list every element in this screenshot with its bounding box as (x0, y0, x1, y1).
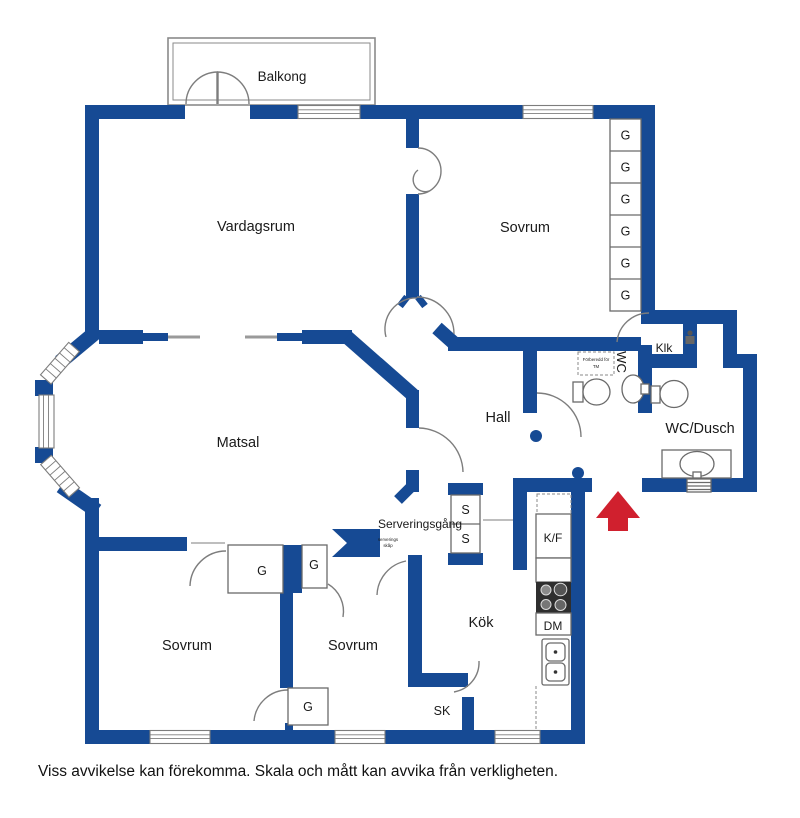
floor-plan: G G G G G G S S G G G serverings skåp (0, 0, 800, 818)
closet-label-s1: S (461, 503, 469, 517)
entrance-arrow-icon (596, 491, 640, 531)
room-label-wc-dusch: WC/Dusch (665, 421, 734, 437)
walls (35, 105, 757, 744)
closet-label-g3: G (621, 193, 631, 207)
disclaimer-text: Viss avvikelse kan förekomma. Skala och … (38, 763, 558, 780)
closet-label-s2: S (461, 532, 469, 546)
stove-icon (536, 582, 571, 613)
door-closet-right-icon (328, 584, 343, 617)
room-label-kok: Kök (469, 615, 495, 631)
washing-machine-provision: Förberedd för TM (578, 352, 614, 375)
door-sovrum-left-icon (190, 543, 226, 586)
bay-window-middle-icon (39, 395, 54, 448)
note-cabinet-line2: skåp (383, 543, 393, 548)
room-label-sovrum-top: Sovrum (500, 220, 550, 236)
floor-plan-page: G G G G G G S S G G G serverings skåp (0, 0, 800, 818)
room-label-sk: SK (434, 704, 451, 718)
serving-cabinet-note: serverings skåp (378, 537, 399, 548)
window-top-right-icon (523, 106, 593, 119)
note-cabinet-line1: serverings (378, 537, 399, 542)
closet-label-g2: G (621, 161, 631, 175)
window-top-left-icon (298, 106, 360, 119)
closet-label-g8: G (309, 558, 319, 572)
closet-label-kf: K/F (544, 531, 563, 545)
closet-label-g7: G (257, 564, 267, 578)
closet-label-g9: G (303, 700, 313, 714)
room-label-sovrum-mid: Sovrum (328, 638, 378, 654)
counter-icon (536, 558, 571, 582)
door-hall-matsal-icon (419, 428, 463, 472)
note-tm-line2: TM (593, 364, 600, 369)
window-bottom-kitchen-icon (495, 731, 540, 744)
room-label-sovrum-left: Sovrum (162, 638, 212, 654)
room-label-hall: Hall (486, 410, 511, 426)
window-bottom-mid-icon (335, 731, 385, 744)
room-label-wc: WC (614, 351, 629, 373)
closet-label-g6: G (621, 289, 631, 303)
closet-label-g1: G (621, 129, 631, 143)
room-label-klk: Klk (656, 341, 674, 355)
closet-label-dm: DM (544, 619, 563, 633)
kitchen-fixtures (536, 494, 571, 729)
g-closet-bottom: G (288, 688, 328, 725)
door-closet-bottom-icon (254, 690, 288, 721)
toilet-wc-icon (573, 379, 610, 405)
room-label-matsal: Matsal (217, 435, 260, 451)
door-vardagsrum-sovrum-icon (413, 148, 441, 194)
window-bottom-left-icon (150, 731, 210, 744)
kitchen-sink-icon (542, 639, 569, 685)
note-tm-line1: Förberedd för (583, 357, 610, 362)
room-label-vardagsrum: Vardagsrum (217, 219, 295, 235)
door-serveringsgang-icon (377, 561, 406, 595)
upper-cabinet-icon (537, 494, 571, 514)
g-closet-pair: G G (228, 545, 327, 593)
closet-label-g4: G (621, 225, 631, 239)
bay-window-upper-icon (41, 342, 80, 384)
room-label-serveringsgang: Serveringsgång (378, 517, 462, 531)
wc-fixtures: Förberedd för TM (573, 352, 649, 405)
wardrobe-column: G G G G G G (610, 119, 641, 311)
toilet-wcdusch-icon (651, 381, 688, 408)
closet-label-g5: G (621, 257, 631, 271)
room-label-balkong: Balkong (258, 69, 307, 84)
